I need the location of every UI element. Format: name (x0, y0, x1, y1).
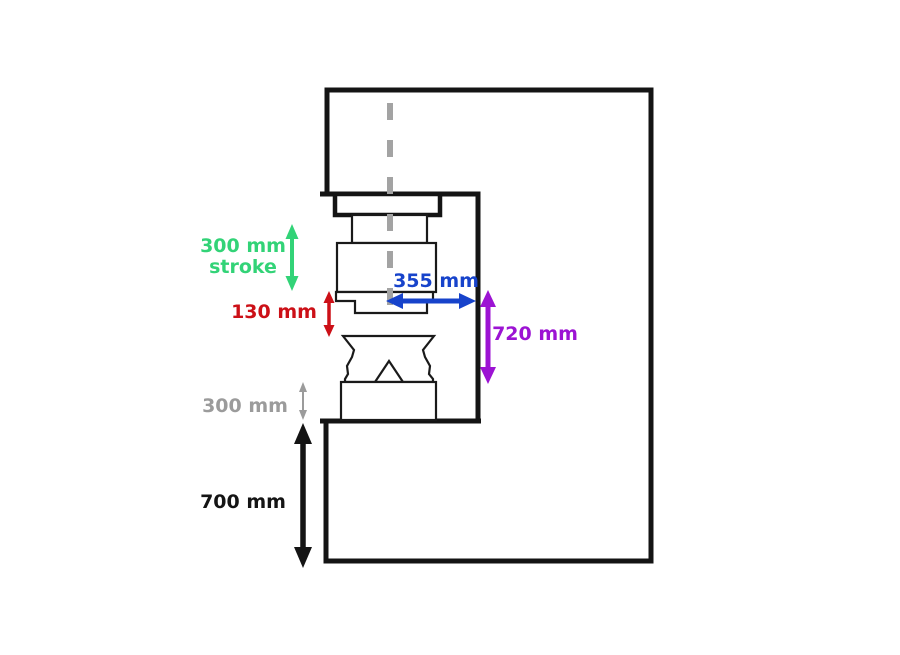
stroke-dimension-label: 300 mm stroke (199, 236, 287, 278)
anvil-height-dimension-label: 300 mm (201, 396, 289, 417)
anvil-base-block (341, 382, 436, 420)
press-frame-drawing (0, 0, 900, 655)
ram-flange (335, 194, 440, 215)
daylight-dimension-label: 720 mm (491, 324, 579, 345)
press-dimension-diagram: 300 mm stroke 130 mm 355 mm 720 mm 300 m… (0, 0, 900, 655)
stroke-dimension-value: 300 mm (199, 236, 287, 257)
open-gap-arrow-icon (324, 291, 335, 337)
throat-dimension-label: 355 mm (392, 271, 480, 292)
stroke-arrow-icon (286, 224, 299, 291)
anvil-height-arrow-icon (299, 382, 307, 420)
base-height-arrow-icon (294, 423, 312, 568)
base-height-dimension-label: 700 mm (199, 492, 287, 513)
open-gap-dimension-label: 130 mm (230, 302, 318, 323)
stroke-dimension-caption: stroke (199, 257, 287, 278)
